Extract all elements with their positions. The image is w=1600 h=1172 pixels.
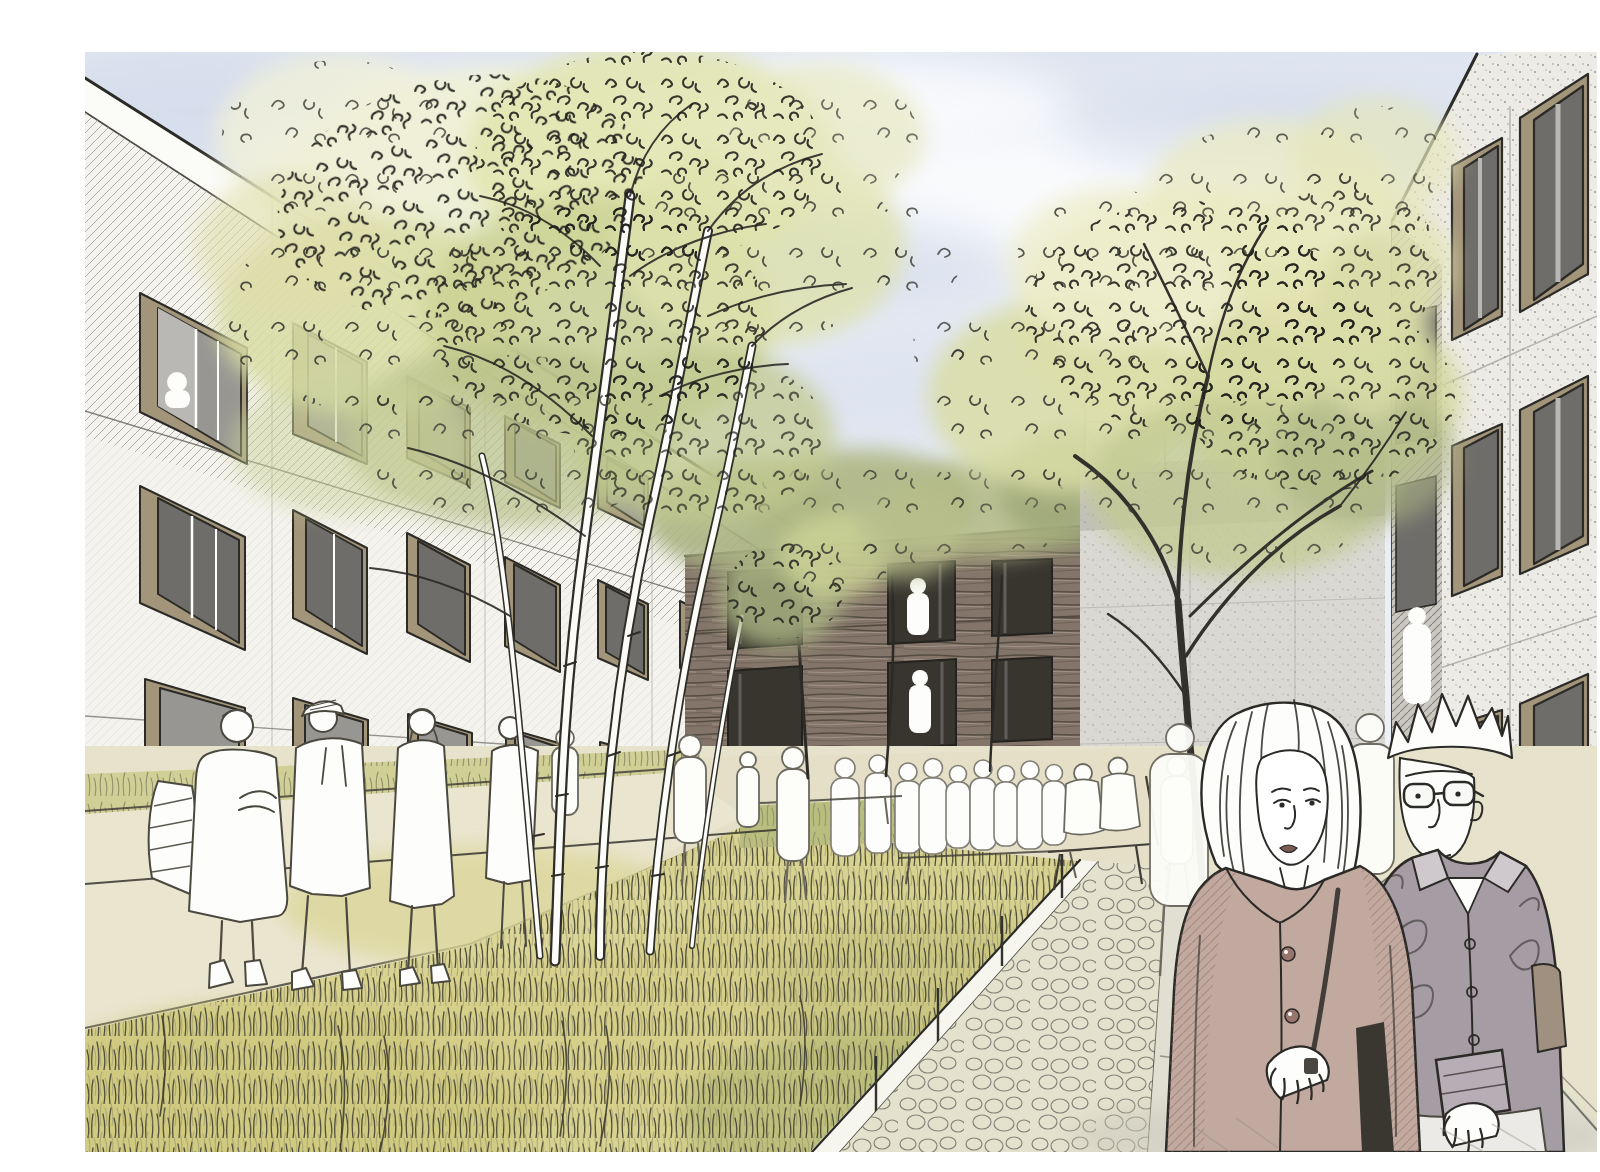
sketch-svg: [40, 16, 1600, 1172]
man-bag: [1532, 964, 1566, 1052]
architectural-sketch: [40, 16, 1600, 1172]
